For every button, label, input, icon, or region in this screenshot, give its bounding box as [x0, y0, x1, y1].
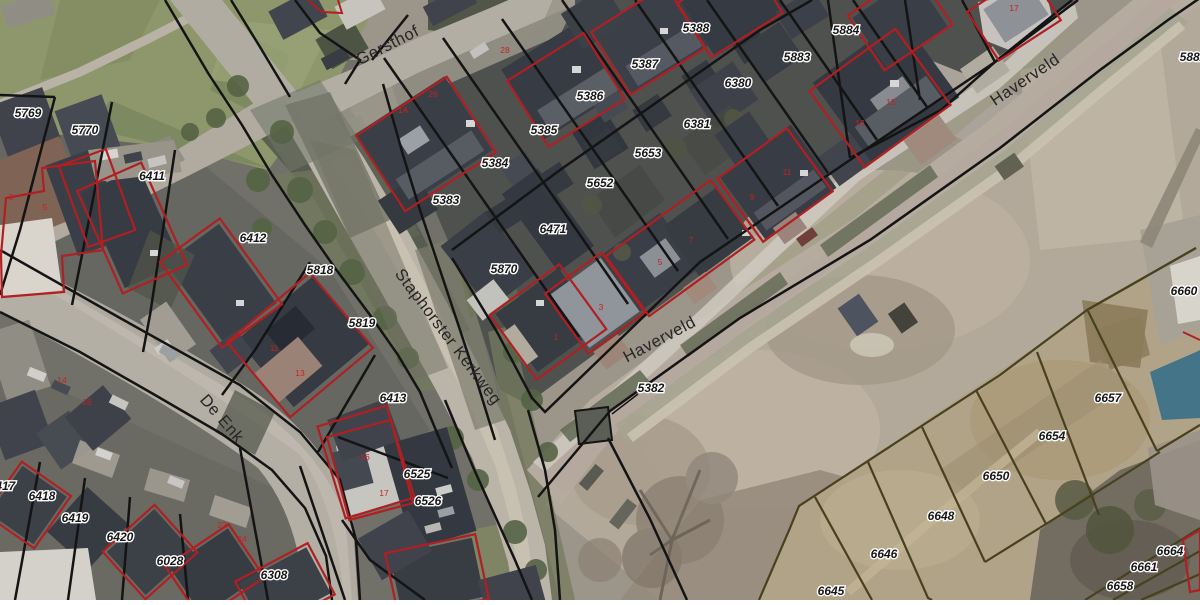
svg-text:5652: 5652	[587, 176, 614, 190]
svg-text:6412: 6412	[240, 231, 267, 245]
svg-text:5883: 5883	[784, 50, 811, 64]
svg-text:5385: 5385	[531, 123, 558, 137]
svg-text:16: 16	[82, 397, 92, 407]
svg-text:6654: 6654	[1039, 429, 1066, 443]
svg-text:6657: 6657	[1095, 391, 1123, 405]
svg-text:6308: 6308	[261, 568, 288, 582]
svg-text:16: 16	[360, 452, 370, 462]
svg-text:6420: 6420	[107, 530, 134, 544]
svg-text:9: 9	[750, 192, 755, 202]
svg-text:5653: 5653	[635, 146, 662, 160]
svg-text:6645: 6645	[818, 584, 845, 598]
svg-text:5: 5	[43, 202, 48, 212]
svg-text:5384: 5384	[482, 156, 509, 170]
svg-text:24: 24	[237, 534, 247, 544]
svg-text:17: 17	[1009, 3, 1019, 13]
svg-text:11: 11	[783, 167, 792, 177]
svg-text:11: 11	[270, 343, 279, 353]
svg-text:15: 15	[886, 97, 896, 107]
svg-text:5386: 5386	[577, 89, 604, 103]
svg-text:6650: 6650	[983, 469, 1010, 483]
svg-text:6471: 6471	[540, 222, 567, 236]
svg-text:3: 3	[599, 302, 604, 312]
svg-text:6028: 6028	[157, 554, 184, 568]
svg-text:6380: 6380	[725, 76, 752, 90]
svg-text:1: 1	[554, 332, 559, 342]
svg-text:1A: 1A	[398, 105, 409, 115]
svg-text:13: 13	[855, 118, 865, 128]
svg-text:6525: 6525	[404, 467, 431, 481]
svg-text:6419: 6419	[62, 511, 89, 525]
svg-text:5383: 5383	[433, 193, 460, 207]
svg-text:22: 22	[217, 520, 227, 530]
svg-text:28: 28	[500, 45, 510, 55]
svg-text:6648: 6648	[928, 509, 955, 523]
svg-text:5387: 5387	[632, 57, 660, 71]
svg-text:13: 13	[295, 368, 305, 378]
svg-text:17: 17	[379, 488, 389, 498]
svg-text:5819: 5819	[349, 316, 376, 330]
svg-text:6526: 6526	[415, 494, 442, 508]
svg-text:6413: 6413	[380, 391, 407, 405]
svg-text:5382: 5382	[638, 381, 665, 395]
svg-text:6646: 6646	[871, 547, 898, 561]
svg-text:5884: 5884	[833, 23, 860, 37]
svg-text:5388: 5388	[683, 21, 710, 35]
svg-text:6664: 6664	[1157, 544, 1184, 558]
svg-text:5882: 5882	[1180, 50, 1200, 64]
svg-text:6381: 6381	[684, 117, 711, 131]
svg-text:5769: 5769	[15, 106, 42, 120]
svg-text:6660: 6660	[1171, 284, 1198, 298]
svg-text:26: 26	[428, 89, 438, 99]
svg-text:6411: 6411	[139, 169, 165, 183]
svg-text:5: 5	[658, 257, 663, 267]
svg-text:7: 7	[689, 235, 694, 245]
svg-text:6661: 6661	[1131, 560, 1158, 574]
svg-text:5770: 5770	[72, 123, 99, 137]
svg-text:6418: 6418	[29, 489, 56, 503]
svg-text:3: 3	[9, 192, 14, 202]
svg-text:6658: 6658	[1107, 579, 1134, 593]
svg-text:6417: 6417	[0, 479, 17, 493]
svg-text:14: 14	[57, 375, 67, 385]
svg-text:5870: 5870	[491, 262, 518, 276]
svg-text:5818: 5818	[307, 263, 334, 277]
